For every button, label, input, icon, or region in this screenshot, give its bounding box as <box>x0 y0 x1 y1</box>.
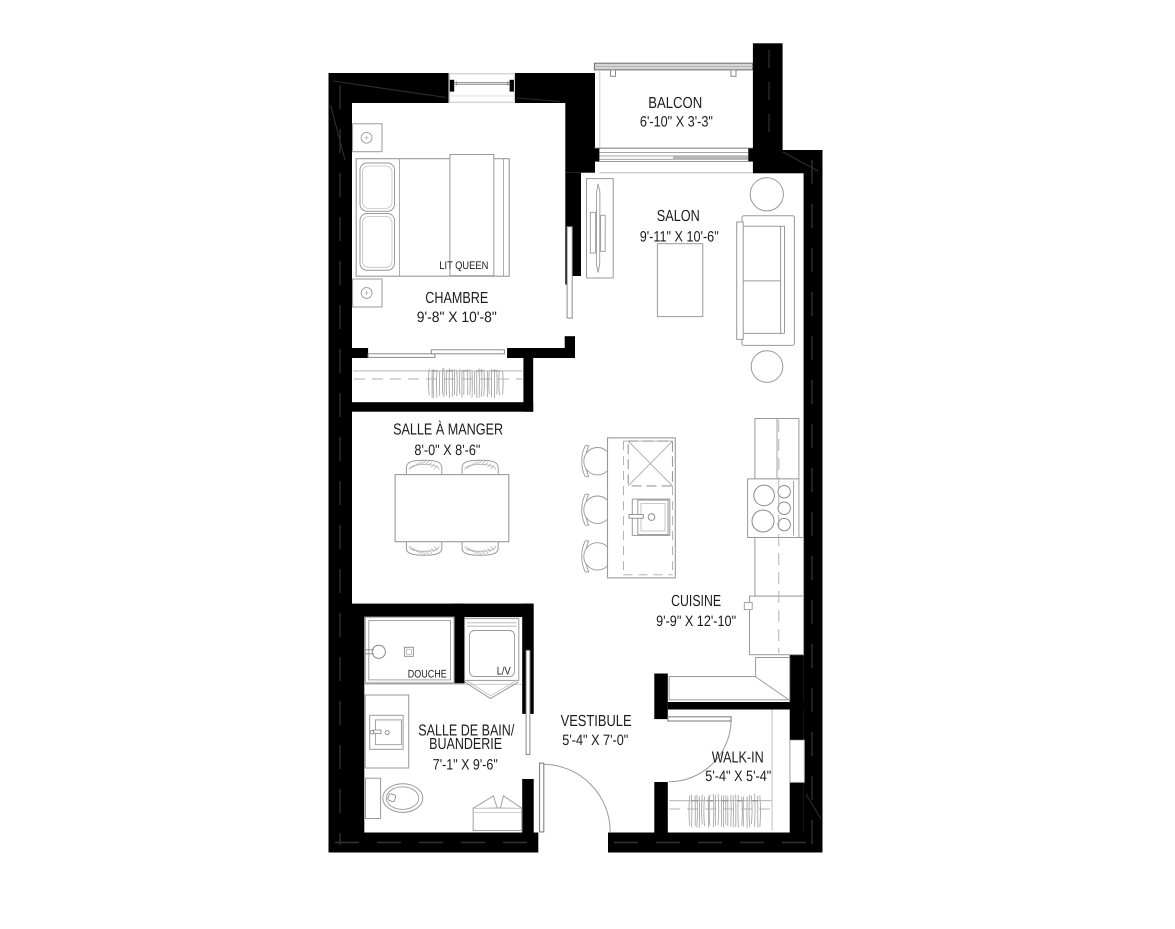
svg-text:CHAMBRE: CHAMBRE <box>425 290 488 307</box>
svg-text:8'-0" X 8'-6": 8'-0" X 8'-6" <box>414 442 480 459</box>
svg-text:9'-9" X 12'-10": 9'-9" X 12'-10" <box>656 613 736 630</box>
svg-text:9'-8" X 10'-8": 9'-8" X 10'-8" <box>417 309 497 326</box>
svg-text:BUANDERIE: BUANDERIE <box>429 736 502 753</box>
svg-text:SALLE À MANGER: SALLE À MANGER <box>393 420 503 438</box>
svg-text:L/V: L/V <box>497 665 512 677</box>
svg-text:CUISINE: CUISINE <box>671 593 721 610</box>
svg-text:7'-1" X 9'-6": 7'-1" X 9'-6" <box>433 756 498 773</box>
svg-text:6'-10" X 3'-3": 6'-10" X 3'-3" <box>640 113 713 130</box>
svg-text:LIT QUEEN: LIT QUEEN <box>439 260 488 272</box>
svg-text:WALK-IN: WALK-IN <box>712 750 764 767</box>
svg-text:5'-4" X 7'-0": 5'-4" X 7'-0" <box>562 732 628 749</box>
svg-text:9'-11" X 10'-6": 9'-11" X 10'-6" <box>640 228 719 245</box>
svg-text:DOUCHE: DOUCHE <box>408 668 447 680</box>
svg-text:BALCON: BALCON <box>648 95 702 112</box>
svg-text:5'-4" X 5'-4": 5'-4" X 5'-4" <box>705 768 771 785</box>
svg-text:VESTIBULE: VESTIBULE <box>561 713 632 730</box>
svg-text:SALON: SALON <box>657 208 700 225</box>
